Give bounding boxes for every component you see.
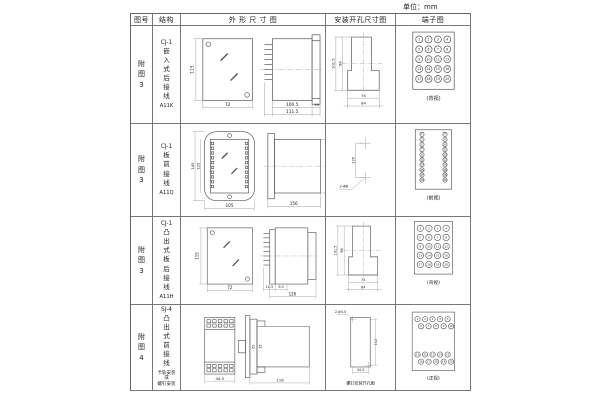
dim-front-width: 72	[225, 102, 231, 108]
svg-text:17: 17	[417, 77, 421, 81]
svg-text:7: 7	[428, 324, 430, 328]
svg-text:16: 16	[419, 360, 423, 364]
svg-text:8: 8	[446, 47, 448, 51]
svg-text:7: 7	[437, 47, 439, 51]
svg-text:6: 6	[428, 47, 430, 51]
svg-text:16: 16	[444, 254, 448, 258]
structure-row3: CJ-1 凸出式板后接线 A11H	[153, 217, 181, 305]
svg-text:18: 18	[435, 360, 439, 364]
fig-no-text: 附图4	[136, 332, 147, 364]
svg-text:16: 16	[443, 168, 447, 172]
svg-text:8: 8	[435, 324, 437, 328]
dim-inner-height: 125	[197, 163, 201, 170]
outline-svg-row4: 44.5 65 35 118	[181, 305, 325, 390]
model-label: CJ-1	[161, 221, 172, 227]
svg-text:9: 9	[443, 324, 445, 328]
svg-text:11: 11	[436, 57, 440, 61]
header-structure: 结构	[153, 14, 181, 26]
outline-drawing-row3: 115 72 11.5 9.5	[181, 217, 326, 305]
outline-drawing-row2: 145 125 105 121 156	[181, 124, 326, 217]
mounting-svg-row3: 101.5 98 74 84	[326, 217, 395, 304]
hole-marks	[360, 137, 372, 183]
svg-text:2: 2	[424, 317, 426, 321]
svg-text:11: 11	[420, 158, 424, 162]
mounting-note: 卡轨安装 或 螺钉安装	[158, 371, 176, 389]
svg-text:9: 9	[418, 57, 420, 61]
svg-text:12: 12	[443, 158, 447, 162]
svg-text:2: 2	[428, 226, 430, 230]
svg-text:19: 19	[436, 263, 440, 267]
svg-text:17: 17	[420, 173, 424, 177]
dim-d2: 9.5	[278, 285, 283, 289]
terminal-svg-row4: 1234567891011121314151617181920 (正视)	[396, 305, 470, 390]
hole-marks	[349, 316, 372, 369]
dim-cutout-v-outer: 101.5	[332, 58, 336, 69]
svg-text:20: 20	[445, 77, 449, 81]
svg-text:16: 16	[445, 67, 449, 71]
dim-cutout-h-outer: 84	[361, 285, 365, 289]
dim-front-height: 115	[195, 252, 200, 260]
outline-svg-row3: 115 72 11.5 9.5	[181, 217, 325, 304]
outline-drawing-row4: 44.5 65 35 118	[181, 305, 326, 391]
svg-text:12: 12	[445, 57, 449, 61]
fig-no-row1: 附图3	[131, 26, 153, 124]
svg-text:11: 11	[436, 244, 440, 248]
terminal-grid: 1234567891011121314151617181920	[416, 36, 451, 82]
dim-depth: 118	[276, 378, 284, 383]
front-view: 115 72	[195, 228, 253, 292]
dim-cutout-h-outer: 84	[361, 102, 366, 106]
svg-text:15: 15	[420, 168, 424, 172]
terminal-drawing-row4: 1234567891011121314151617181920 (正视)	[396, 305, 471, 391]
svg-text:6: 6	[444, 142, 446, 146]
svg-text:14: 14	[427, 67, 431, 71]
fig-no-row2: 附图3	[131, 124, 153, 217]
svg-text:15: 15	[446, 352, 450, 356]
svg-text:3: 3	[437, 226, 439, 230]
unit-label: 单位：mm	[403, 2, 438, 12]
svg-text:5: 5	[421, 142, 423, 146]
dim-front-width: 44.5	[215, 376, 224, 381]
mounting-svg-row4: 2-Φ4.5 112 44.5 螺钉安装开孔图	[326, 305, 395, 390]
svg-text:3: 3	[421, 137, 423, 141]
svg-text:11: 11	[416, 352, 420, 356]
dim-front-height: 115	[189, 65, 195, 74]
mounting-drawing-row2: 135 2-Φ6	[326, 124, 396, 217]
svg-text:7: 7	[437, 235, 439, 239]
dim-hole-spacing-h: 44.5	[357, 368, 364, 372]
dim-cutout-v-inner: 98	[340, 248, 344, 252]
terminal-drawing-row1: 1234567891011121314151617181920 (背视)	[396, 26, 471, 124]
code-label: A11H	[159, 294, 173, 300]
structure-label: 板前接线	[162, 151, 171, 187]
svg-text:3: 3	[432, 317, 434, 321]
svg-text:10: 10	[427, 57, 431, 61]
header-fig-no: 图号	[131, 14, 153, 26]
dim-front-width: 105	[226, 203, 234, 208]
outline-drawing-row1: 115 72 100.5	[181, 26, 326, 124]
dim-cutout-v-outer: 101.5	[334, 246, 338, 256]
dim-hole-spacing-v: 135	[351, 157, 355, 164]
outline-svg-row2: 145 125 105 121 156	[181, 124, 325, 216]
terminal-blocks	[207, 320, 233, 372]
svg-text:5: 5	[419, 235, 421, 239]
svg-text:20: 20	[444, 263, 448, 267]
dim-hole-size: 2-Φ6	[339, 185, 348, 189]
structure-row4: SJ-4 凸出式前接线 卡轨安装 或 螺钉安装	[153, 305, 181, 391]
svg-text:13: 13	[417, 67, 421, 71]
svg-text:9: 9	[419, 244, 421, 248]
svg-text:6: 6	[420, 324, 422, 328]
svg-text:4: 4	[439, 317, 441, 321]
fig-no-text: 附图3	[136, 245, 147, 277]
svg-text:5: 5	[447, 317, 449, 321]
side-view: 11.5 9.5 126	[260, 228, 318, 299]
spec-table: 图号 结构 外 形 尺 寸 图 安装开孔尺寸图 端子图 附图3 CJ-1 嵌入式…	[130, 13, 471, 391]
svg-text:18: 18	[427, 263, 431, 267]
svg-text:1: 1	[417, 317, 419, 321]
svg-text:12: 12	[444, 244, 448, 248]
dim-front-height: 145	[191, 163, 195, 170]
dim-d1: 11.5	[265, 285, 273, 289]
terminal-drawing-row3: 1234567891011121314151617181920 (背视)	[396, 217, 471, 305]
terminal-svg-row2: 1357911131517192468101214161820 (前视)	[396, 124, 470, 216]
dim-flange: 16	[314, 103, 319, 107]
svg-text:4: 4	[446, 38, 448, 42]
dim-hole-size: 2-Φ4.5	[335, 310, 346, 314]
dim-clip-h2: 35	[258, 344, 262, 348]
svg-text:8: 8	[444, 147, 446, 151]
svg-text:20: 20	[443, 178, 447, 182]
model-label: CJ-1	[161, 144, 172, 150]
svg-text:3: 3	[437, 38, 439, 42]
dim-front-width: 72	[227, 285, 233, 290]
fig-no-row3: 附图3	[131, 217, 153, 305]
svg-text:1: 1	[419, 226, 421, 230]
svg-text:4: 4	[445, 226, 447, 230]
svg-text:14: 14	[427, 254, 431, 258]
svg-text:1: 1	[421, 132, 423, 136]
front-view: 145 125 105	[191, 132, 255, 211]
terminal-ticks	[211, 142, 247, 188]
dim-depth: 156	[290, 201, 298, 206]
structure-label: 凸出式前接线	[162, 314, 171, 369]
svg-text:14: 14	[443, 163, 447, 167]
svg-text:13: 13	[418, 254, 422, 258]
svg-text:4: 4	[444, 137, 446, 141]
front-view: 44.5	[205, 317, 235, 383]
side-view: 65 35 118	[238, 316, 309, 385]
fig-no-row4: 附图4	[131, 305, 153, 391]
dim-cutout-h-inner: 74	[361, 278, 365, 282]
svg-text:10: 10	[427, 244, 431, 248]
mounting-drawing-row3: 101.5 98 74 84	[326, 217, 396, 305]
svg-text:15: 15	[436, 67, 440, 71]
mounting-svg-row1: 101.5 98 74 84	[326, 26, 395, 123]
svg-text:13: 13	[431, 352, 435, 356]
dim-cutout-v-inner: 98	[338, 61, 342, 66]
terminal-grid: 1234567891011121314151617181920	[417, 225, 449, 268]
terminal-caption: (正视)	[427, 374, 440, 381]
header-terminal: 端子图	[396, 14, 471, 26]
dim-depth: 100.5	[286, 102, 299, 108]
svg-text:20: 20	[450, 360, 454, 364]
svg-text:18: 18	[427, 77, 431, 81]
svg-text:17: 17	[427, 360, 431, 364]
terminal-svg-row1: 1234567891011121314151617181920 (背视)	[396, 26, 470, 123]
svg-text:1: 1	[418, 38, 420, 42]
mounting-drawing-row4: 2-Φ4.5 112 44.5 螺钉安装开孔图	[326, 305, 396, 391]
header-outline: 外 形 尺 寸 图	[181, 14, 326, 26]
fig-no-text: 附图3	[136, 154, 147, 186]
svg-text:2: 2	[444, 132, 446, 136]
terminal-caption: (背视)	[427, 279, 440, 286]
dim-cutout-h-inner: 74	[361, 94, 366, 98]
svg-text:18: 18	[443, 173, 447, 177]
model-label: SJ-4	[161, 307, 172, 313]
dim-clip-h1: 65	[251, 344, 255, 348]
svg-text:6: 6	[428, 235, 430, 239]
header-mounting: 安装开孔尺寸图	[326, 14, 396, 26]
svg-text:2: 2	[428, 38, 430, 42]
fig-no-text: 附图3	[136, 59, 147, 91]
svg-text:7: 7	[421, 147, 423, 151]
structure-row2: CJ-1 板前接线 A11Q	[153, 124, 181, 217]
mounting-drawing-row1: 101.5 98 74 84	[326, 26, 396, 124]
mounting-svg-row2: 135 2-Φ6	[326, 124, 395, 216]
dim-hole-spacing-v: 112	[374, 339, 378, 345]
structure-label: 凸出式板后接线	[162, 228, 171, 292]
dim-depth: 126	[289, 291, 297, 296]
svg-text:14: 14	[439, 352, 443, 356]
svg-text:5: 5	[418, 47, 420, 51]
terminal-grid: 1357911131517192468101214161820	[420, 132, 447, 182]
svg-text:9: 9	[421, 153, 423, 157]
dim-total-depth: 111.5	[286, 109, 299, 115]
svg-text:10: 10	[443, 153, 447, 157]
svg-text:10: 10	[450, 324, 454, 328]
terminal-svg-row3: 1234567891011121314151617181920 (背视)	[396, 217, 470, 304]
mounting-caption: 螺钉安装开孔图	[346, 380, 374, 386]
terminal-caption: (前视)	[427, 195, 441, 202]
terminal-grid: 1234567891011121314151617181920	[415, 317, 454, 365]
note-line-3: 螺钉安装	[158, 382, 176, 388]
structure-label: 嵌入式后接线	[162, 47, 171, 102]
code-label: A11Q	[159, 190, 173, 196]
svg-text:15: 15	[436, 254, 440, 258]
svg-text:19: 19	[442, 360, 446, 364]
svg-text:8: 8	[445, 235, 447, 239]
front-view: 115 72	[189, 39, 252, 110]
side-view: 121 156	[264, 134, 325, 209]
svg-text:17: 17	[418, 263, 422, 267]
model-label: CJ-1	[161, 40, 172, 46]
code-label: A11K	[160, 103, 174, 109]
svg-text:13: 13	[420, 163, 424, 167]
svg-text:19: 19	[420, 178, 424, 182]
terminal-caption: (背视)	[426, 94, 440, 102]
side-view: 100.5 16 111.5	[260, 35, 323, 116]
terminal-drawing-row2: 1357911131517192468101214161820 (前视)	[396, 124, 471, 217]
svg-text:12: 12	[423, 352, 427, 356]
structure-row1: CJ-1 嵌入式后接线 A11K	[153, 26, 181, 124]
outline-svg-row1: 115 72 100.5	[181, 26, 325, 123]
svg-text:19: 19	[436, 77, 440, 81]
